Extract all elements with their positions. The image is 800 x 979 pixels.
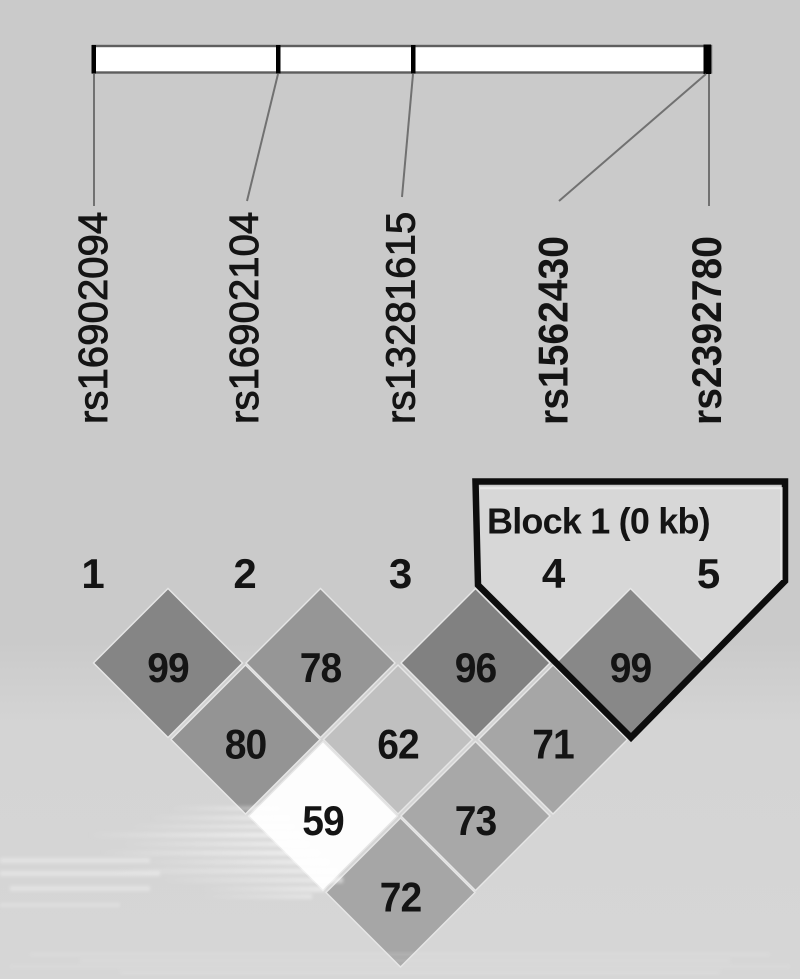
svg-text:rs16902094: rs16902094 xyxy=(70,212,116,424)
svg-text:3: 3 xyxy=(389,550,411,597)
svg-text:71: 71 xyxy=(532,720,574,768)
svg-text:72: 72 xyxy=(380,873,422,921)
svg-text:5: 5 xyxy=(697,550,720,597)
svg-text:96: 96 xyxy=(455,644,497,692)
svg-text:Block 1 (0 kb): Block 1 (0 kb) xyxy=(487,501,710,542)
svg-text:62: 62 xyxy=(377,720,419,768)
svg-text:2: 2 xyxy=(233,550,255,597)
svg-text:rs13281615: rs13281615 xyxy=(377,212,423,424)
svg-text:78: 78 xyxy=(300,644,342,692)
svg-text:rs1562430: rs1562430 xyxy=(529,236,577,425)
svg-text:59: 59 xyxy=(302,797,344,845)
svg-text:99: 99 xyxy=(147,644,189,692)
svg-text:80: 80 xyxy=(225,720,267,768)
svg-text:73: 73 xyxy=(455,797,497,845)
svg-text:4: 4 xyxy=(542,550,566,597)
svg-text:99: 99 xyxy=(610,644,652,692)
svg-text:rs2392780: rs2392780 xyxy=(683,236,731,425)
svg-text:rs16902104: rs16902104 xyxy=(221,212,267,424)
svg-text:1: 1 xyxy=(81,550,104,597)
